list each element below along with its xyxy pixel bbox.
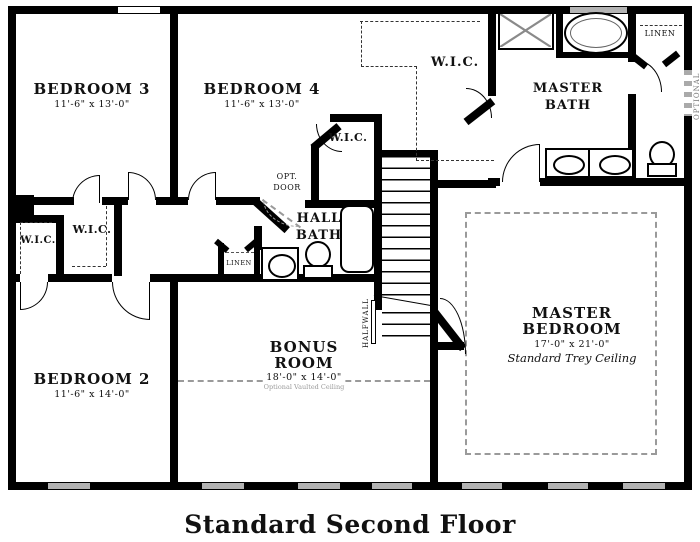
wall-outer-left [8,6,16,490]
shelf-line [20,222,52,223]
wall [156,197,170,205]
bathtub-master [564,12,628,54]
label-bedroom3-dims: 11'-6" x 13'-0" [54,100,130,110]
shelf-line [361,66,417,67]
wall-outer-bottom [8,482,692,490]
shelf-line [360,21,480,22]
optional-opening [684,70,692,116]
door-swing-wic1 [20,282,48,310]
sink-left [553,155,585,175]
door-swing-wic2 [72,175,100,203]
wall-wic-bath [488,14,496,96]
label-linen-top: LINEN [645,30,676,38]
door-swing-master-bedroom [440,298,466,354]
toilet-hall-tank [303,265,333,279]
wall [311,145,319,208]
shelf-line [416,66,417,161]
label-bedroom3-name: BEDROOM 3 [34,82,151,98]
wall [8,274,20,282]
window [462,482,502,490]
vanity-divider [588,150,590,176]
shower-x-icon [500,14,551,47]
window [623,482,665,490]
shower [498,12,554,50]
wall-bonus-master [430,342,438,482]
label-master-bedroom-note: Standard Trey Ceiling [507,352,636,364]
wall [218,274,382,282]
wall [150,274,222,282]
label-opt-door-line2: DOOR [273,184,301,192]
toilet-master-tank [647,163,677,177]
label-wic-bed4: W.I.C. [329,132,368,144]
door-swing-toilet-room [636,60,662,92]
label-master-bath-line2: BATH [545,99,591,113]
label-wic-hall-2: W.I.C. [73,224,112,236]
toilet-hall-bowl [305,241,331,268]
shelf-line [226,252,254,253]
wall [56,215,64,276]
door-swing-bed2 [112,282,150,320]
window [548,482,588,490]
shelf-line [640,25,682,26]
vanity-master [545,148,634,178]
label-bedroom4-dims: 11'-6" x 13'-0" [224,100,300,110]
shelf-line [72,266,106,267]
stairs-treads-lower [382,312,430,345]
window [372,482,412,490]
floor-plan: OPTIONAL HALF [0,0,700,542]
halfwall [371,300,376,344]
label-linen-hall: LINEN [226,260,252,267]
door-swing-bed4 [188,172,216,200]
label-bonus-line2: ROOM [274,356,333,372]
wall [488,178,500,186]
label-master-bath-line1: MASTER [533,82,603,96]
label-bonus-dims: 18'-0" x 14'-0" [263,373,345,383]
label-hall-bath-line2: BATH [296,229,342,243]
opt-door-swing [263,199,299,227]
halfwall-label: HALFWALL [362,296,370,348]
wall-bath-south [540,178,692,186]
wall-bed2-bonus [170,276,178,482]
wall-angled [662,51,680,68]
label-wic-master: W.I.C. [431,56,479,70]
shelf-line [20,222,21,274]
shelf-line [416,160,494,161]
door-swing-bed3 [128,172,156,200]
label-master-bedroom-line2: BEDROOM [522,322,621,338]
stairs-treads [382,156,430,303]
window [202,482,244,490]
window [118,6,160,14]
label-opt-door-line1: OPT. [277,173,298,181]
bathtub-hall [340,205,374,273]
wall-wic-south [436,180,496,188]
shelf-line [106,206,107,266]
sink-right [599,155,631,175]
bathtub-inner-line [570,18,622,48]
label-hall-bath-line1: HALL [297,212,342,226]
label-bedroom2-dims: 11'-6" x 14'-0" [54,390,130,400]
label-master-bedroom-dims: 17'-0" x 21'-0" [534,340,610,350]
label-wic-hall-1: W.I.C. [20,236,56,247]
plan-title: Standard Second Floor [184,510,516,539]
optional-label: OPTIONAL [693,64,700,120]
door-swing-master-bath [502,144,540,182]
sink-hall-counter [261,247,299,281]
label-bedroom4-name: BEDROOM 4 [204,82,321,98]
window [48,482,90,490]
label-bonus-note: Optional Vaulted Ceiling [262,384,347,391]
shelf-line [361,21,362,67]
window [298,482,340,490]
wall [178,197,188,205]
label-bedroom2-name: BEDROOM 2 [34,372,151,388]
sink-hall-bowl [268,254,296,278]
wall-bed3-bed4 [170,6,178,205]
wall [114,197,122,276]
